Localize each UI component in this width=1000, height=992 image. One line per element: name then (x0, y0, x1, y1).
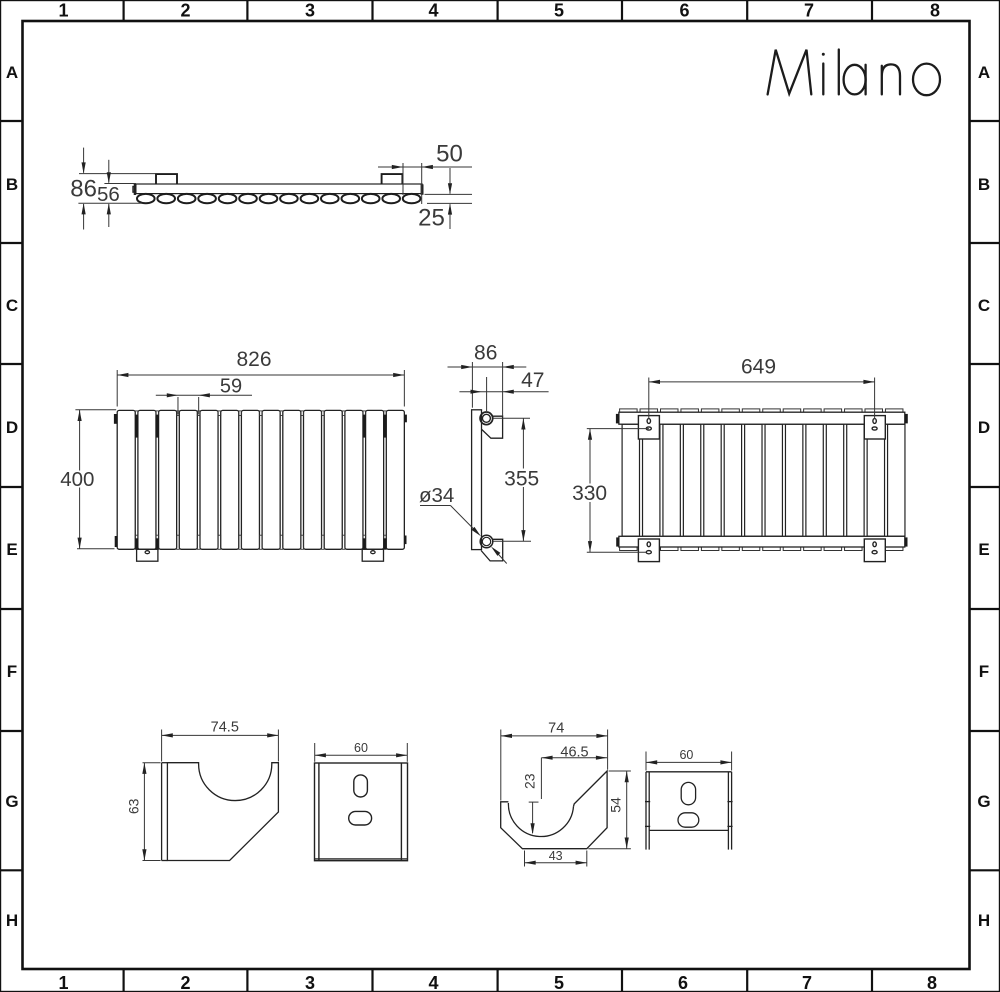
svg-text:59: 59 (220, 376, 242, 398)
svg-text:H: H (978, 911, 990, 930)
svg-text:74.5: 74.5 (211, 720, 239, 736)
svg-text:7: 7 (804, 1, 814, 21)
svg-text:7: 7 (802, 973, 812, 992)
svg-text:5: 5 (554, 1, 564, 21)
svg-text:60: 60 (354, 741, 368, 755)
svg-text:F: F (7, 662, 17, 681)
svg-text:8: 8 (930, 1, 940, 21)
svg-text:D: D (978, 418, 990, 437)
svg-text:F: F (979, 662, 989, 681)
svg-text:C: C (978, 296, 990, 315)
svg-text:54: 54 (608, 797, 624, 813)
svg-text:86: 86 (474, 342, 497, 365)
svg-text:826: 826 (236, 348, 271, 371)
svg-text:2: 2 (180, 1, 190, 21)
svg-text:5: 5 (554, 973, 564, 992)
svg-text:ø34: ø34 (419, 484, 454, 507)
svg-text:E: E (6, 540, 17, 559)
svg-text:46.5: 46.5 (560, 744, 588, 760)
svg-text:3: 3 (305, 973, 315, 992)
svg-text:B: B (978, 175, 990, 194)
svg-text:50: 50 (436, 141, 463, 168)
svg-text:43: 43 (549, 849, 563, 863)
svg-text:E: E (978, 540, 989, 559)
svg-text:23: 23 (522, 773, 538, 789)
svg-text:1: 1 (58, 1, 68, 21)
svg-text:56: 56 (97, 183, 120, 206)
svg-text:D: D (6, 418, 18, 437)
svg-text:6: 6 (679, 1, 689, 21)
svg-text:B: B (6, 175, 18, 194)
svg-text:3: 3 (305, 1, 315, 21)
svg-text:355: 355 (504, 468, 539, 491)
svg-text:47: 47 (521, 369, 544, 392)
svg-text:G: G (5, 792, 18, 811)
svg-text:400: 400 (60, 468, 94, 491)
svg-text:6: 6 (678, 973, 688, 992)
svg-text:60: 60 (679, 748, 693, 762)
svg-text:1: 1 (58, 973, 68, 992)
svg-text:A: A (978, 63, 990, 82)
svg-text:4: 4 (428, 973, 438, 992)
svg-text:C: C (6, 296, 18, 315)
svg-text:74: 74 (548, 720, 564, 736)
svg-text:63: 63 (126, 798, 142, 814)
svg-text:649: 649 (741, 356, 776, 379)
svg-text:4: 4 (428, 1, 438, 21)
svg-text:G: G (977, 792, 990, 811)
svg-text:H: H (6, 911, 18, 930)
svg-text:25: 25 (418, 205, 445, 232)
svg-text:8: 8 (927, 973, 937, 992)
svg-text:2: 2 (180, 973, 190, 992)
svg-text:86: 86 (70, 175, 97, 202)
svg-text:A: A (6, 63, 18, 82)
svg-text:330: 330 (572, 482, 607, 505)
